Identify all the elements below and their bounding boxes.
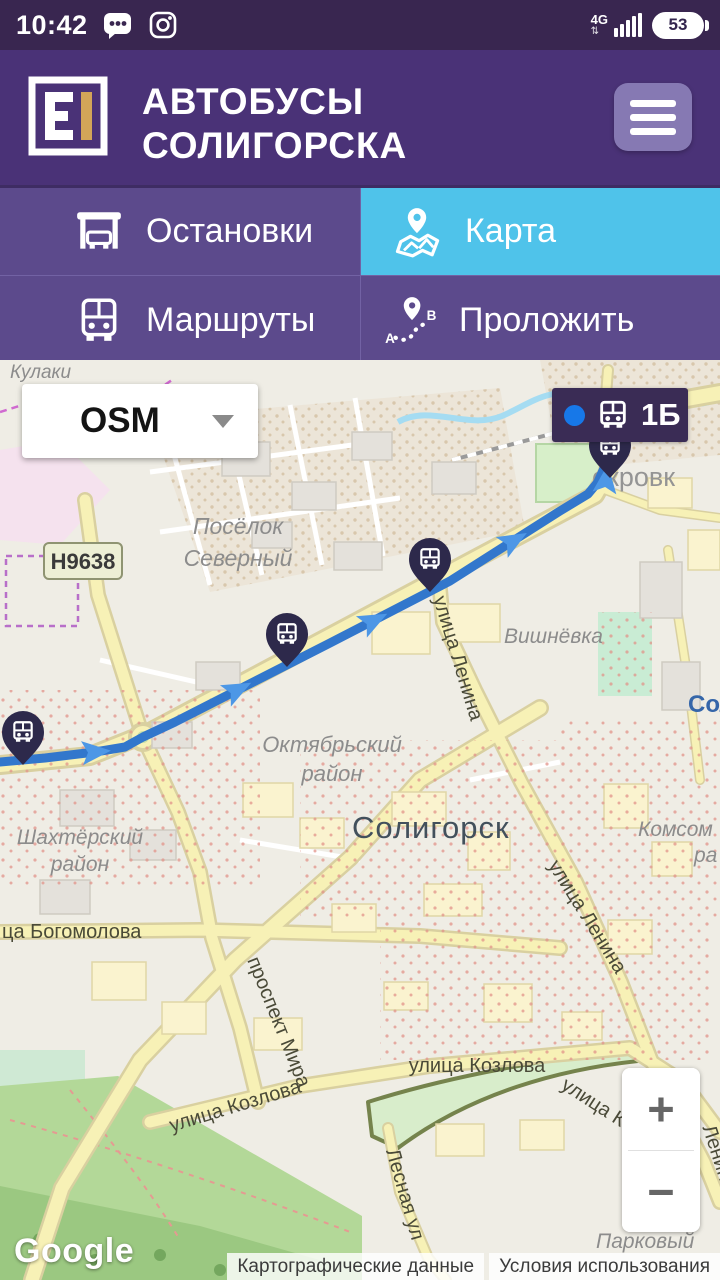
terms-link[interactable]: Условия использования: [489, 1253, 720, 1280]
zoom-in-button[interactable]: +: [622, 1068, 700, 1150]
bus-front-icon: [74, 295, 124, 345]
place-label-severny-1: Посёлок: [193, 513, 285, 539]
zoom-controls: + −: [622, 1068, 700, 1232]
network-type: 4G ⇅: [591, 13, 608, 37]
place-label-komsomolsky-1: Комсом: [638, 818, 713, 841]
place-label-komsomolsky-2: ра: [693, 844, 717, 867]
zoom-out-button[interactable]: −: [622, 1151, 700, 1233]
street-label-bogomolova: ца Богомолова: [2, 921, 142, 943]
map-data-link[interactable]: Картографические данные: [227, 1253, 484, 1280]
app-logo: [28, 76, 108, 161]
bus-status-dot: [564, 405, 585, 426]
tab-map[interactable]: Карта: [361, 188, 720, 275]
place-label-city: Солигорск: [352, 810, 510, 845]
clock: 10:42: [16, 10, 88, 41]
road-ref-badge: Н9638: [44, 543, 122, 579]
route-to-label: B: [427, 308, 437, 323]
instagram-notification-icon: [148, 10, 178, 40]
map-pin-icon: [391, 206, 443, 258]
place-label-parkovy: Парковый: [596, 1230, 695, 1253]
menu-button[interactable]: [614, 83, 692, 151]
status-bar: 10:42 4G ⇅: [0, 0, 720, 50]
place-label-shakhtyorsky-2: район: [50, 853, 110, 876]
bus-icon: [594, 398, 632, 432]
tab-plan-label: Проложить: [459, 301, 634, 340]
map-layer-value: OSM: [80, 401, 160, 441]
street-label-kozlova-h: улица Козлова: [409, 1055, 546, 1077]
battery-indicator: 53: [652, 12, 704, 39]
place-label-oktyabrsky-1: Октябрьский: [262, 732, 402, 757]
route-a-b-icon: A B: [383, 294, 437, 346]
tab-plan-route[interactable]: A B Проложить: [361, 276, 720, 364]
map-attribution: Картографические данные Условия использо…: [227, 1253, 720, 1280]
app-title: АВТОБУСЫ СОЛИГОРСКА: [142, 80, 407, 168]
place-label-sol: Сол: [688, 691, 720, 718]
message-notification-icon: [102, 10, 134, 40]
map-canvas[interactable]: Н9638 ца Богомолова улица Ленина улица Л…: [0, 360, 720, 1280]
tab-routes[interactable]: Маршруты: [0, 276, 360, 364]
tab-map-label: Карта: [465, 212, 556, 251]
app-screen: 10:42 4G ⇅: [0, 0, 720, 1280]
map-layer-selector[interactable]: OSM: [22, 384, 258, 458]
app-header: АВТОБУСЫ СОЛИГОРСКА: [0, 50, 720, 185]
tab-routes-label: Маршруты: [146, 301, 315, 340]
main-tabs: Остановки Карта Маршруты: [0, 185, 720, 360]
place-label-severny-2: Северный: [184, 545, 293, 571]
tab-stops[interactable]: Остановки: [0, 188, 360, 275]
chevron-down-icon: [212, 415, 234, 428]
data-arrows-icon: ⇅: [591, 27, 599, 37]
bus-route-badge[interactable]: 1Б: [552, 388, 688, 442]
route-from-label: A: [385, 331, 395, 346]
google-logo[interactable]: Google: [14, 1232, 134, 1271]
map-tiles: Н9638 ца Богомолова улица Ленина улица Л…: [0, 360, 720, 1280]
status-right-cluster: 4G ⇅ 53: [591, 12, 704, 39]
road-ref-label: Н9638: [51, 549, 116, 574]
tab-stops-label: Остановки: [146, 212, 313, 251]
route-number: 1Б: [641, 397, 681, 433]
place-label-oktyabrsky-2: район: [300, 761, 362, 786]
place-label-vishnevka: Вишнёвка: [504, 625, 603, 648]
signal-strength-icon: [614, 13, 642, 37]
bus-stop-icon: [74, 207, 124, 257]
place-label-shakhtyorsky-1: Шахтёрский: [17, 826, 143, 849]
place-label-kulaki: Кулаки: [10, 362, 72, 383]
